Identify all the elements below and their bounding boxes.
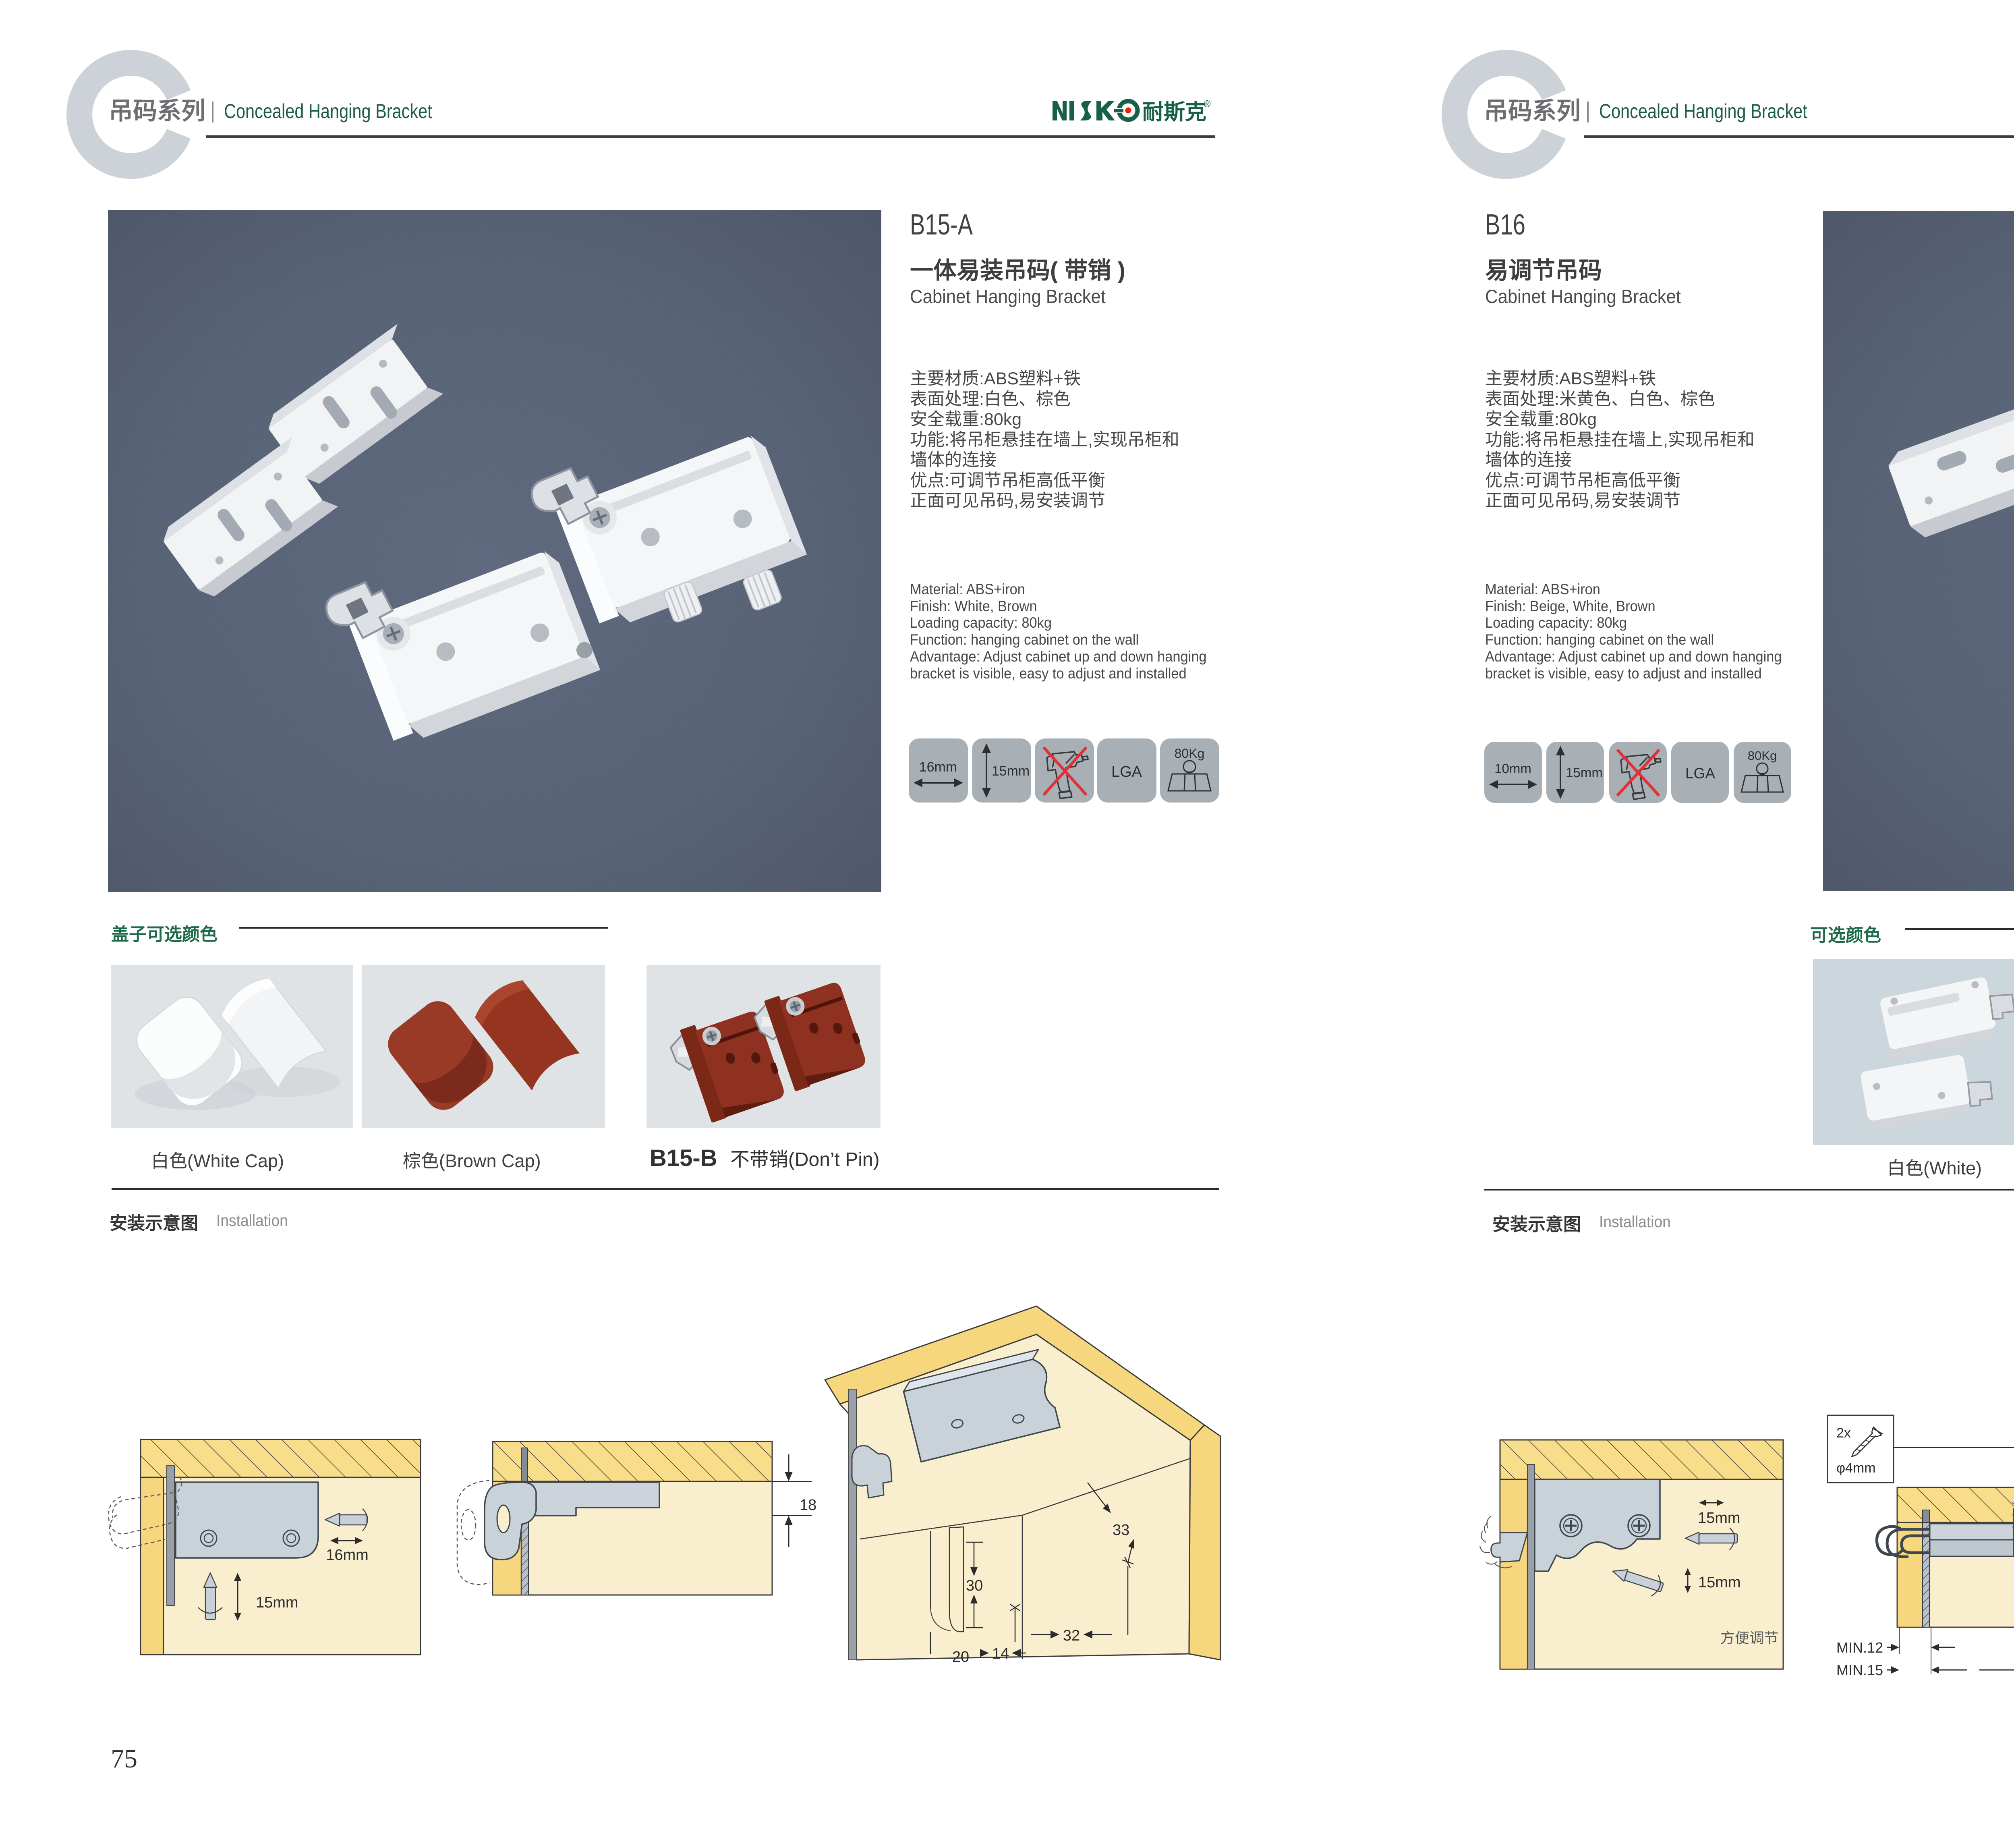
svg-text:80Kg: 80Kg [1175,746,1205,761]
svg-text:33: 33 [1113,1522,1129,1539]
svg-text:方便调节: 方便调节 [1720,1630,1778,1646]
svg-text:30: 30 [966,1577,983,1594]
svg-text:15mm: 15mm [992,763,1030,779]
svg-text:15mm: 15mm [1566,765,1603,780]
svg-text:10mm: 10mm [1494,761,1531,776]
svg-text:耐斯克: 耐斯克 [1142,100,1206,124]
svg-text:MIN.15: MIN.15 [1836,1662,1883,1678]
svg-text:MIN.12: MIN.12 [1836,1639,1883,1656]
svg-text:15mm: 15mm [1698,1510,1740,1527]
svg-text:LGA: LGA [1685,765,1715,782]
svg-text:15mm: 15mm [256,1594,298,1611]
svg-text:16mm: 16mm [326,1547,369,1564]
svg-text:2x: 2x [1836,1425,1851,1441]
svg-text:φ4mm: φ4mm [1836,1460,1876,1476]
svg-text:16mm: 16mm [919,759,957,775]
svg-text:15mm: 15mm [1698,1574,1741,1591]
svg-text:32: 32 [1063,1627,1080,1644]
svg-text:80Kg: 80Kg [1748,749,1777,763]
svg-text:20: 20 [952,1649,969,1665]
svg-text:®: ® [1204,99,1211,110]
svg-text:18: 18 [800,1497,816,1514]
svg-text:LGA: LGA [1111,763,1142,780]
svg-text:14: 14 [992,1645,1009,1662]
